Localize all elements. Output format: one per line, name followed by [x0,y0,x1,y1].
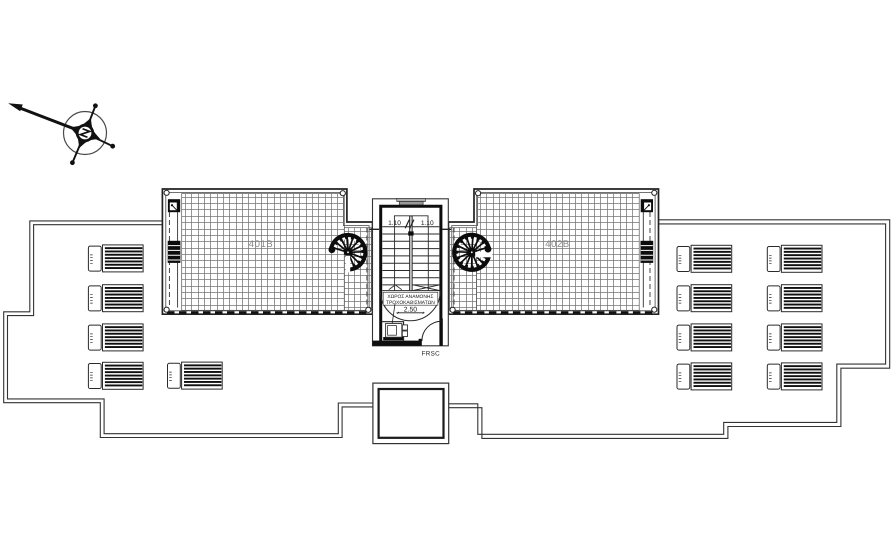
svg-text:401B: 401B [249,239,273,250]
svg-text:ΧΩΡΟΣ ΑΝΑΜΟΝΗΣ: ΧΩΡΟΣ ΑΝΑΜΟΝΗΣ [387,294,433,300]
svg-text:2.50: 2.50 [404,306,417,313]
svg-text:FRSC: FRSC [422,350,440,357]
svg-text:1.10: 1.10 [388,220,401,227]
svg-text:402B: 402B [545,239,569,250]
svg-text:ΤΡΟΧΟΚΑΘΙΣΜΑΤΩΝ: ΤΡΟΧΟΚΑΘΙΣΜΑΤΩΝ [386,300,435,306]
svg-text:1.10: 1.10 [421,220,434,227]
